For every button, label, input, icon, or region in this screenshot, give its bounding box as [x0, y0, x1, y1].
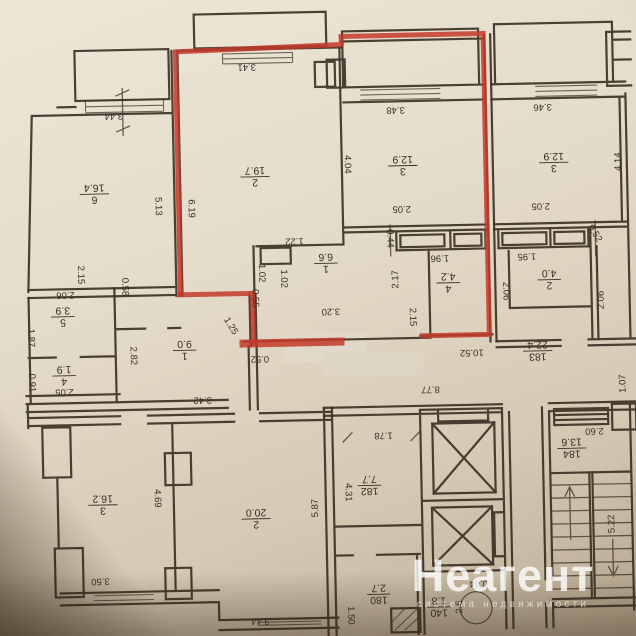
svg-text:4.2: 4.2 — [441, 270, 456, 282]
svg-text:1.9: 1.9 — [56, 363, 71, 375]
dimension-label: 1.02 — [278, 269, 289, 288]
svg-text:1.22: 1.22 — [285, 235, 304, 246]
dimension-label: 2.60 — [585, 425, 604, 436]
room-label: 1802.7 — [367, 582, 391, 606]
room-label: 16.6 — [314, 251, 338, 275]
dimension-label: 0.52 — [250, 353, 269, 364]
svg-text:2.82: 2.82 — [128, 347, 139, 366]
svg-text:1.96: 1.96 — [430, 252, 449, 263]
svg-text:3.20: 3.20 — [321, 306, 340, 317]
dimension-label: 0.55 — [249, 289, 260, 308]
svg-text:3.44: 3.44 — [251, 615, 270, 626]
room-label: 316.2 — [88, 492, 118, 517]
svg-text:4: 4 — [61, 375, 67, 387]
dimension-label: 1.95 — [517, 250, 536, 261]
svg-text:2.06: 2.06 — [56, 289, 75, 300]
svg-text:4.04: 4.04 — [342, 155, 353, 174]
svg-text:1.78: 1.78 — [374, 429, 393, 440]
svg-text:140: 140 — [430, 606, 448, 618]
svg-text:1.8: 1.8 — [431, 594, 446, 606]
svg-text:2.60: 2.60 — [585, 425, 604, 436]
dimension-label: 3.50 — [91, 575, 110, 586]
dimension-label: 0.44 — [469, 578, 488, 589]
dimension-label: 0.44 — [384, 229, 395, 248]
svg-text:0.55: 0.55 — [249, 289, 260, 308]
svg-text:3.46: 3.46 — [533, 101, 552, 112]
walls-corridor-and-core — [249, 338, 636, 636]
room-label: 18413.6 — [557, 435, 587, 460]
dimension-label: 5.22 — [606, 515, 617, 534]
dimension-label: 0.91 — [26, 374, 37, 393]
dimension-label: 3.20 — [321, 306, 340, 317]
dimension-label: 4.69 — [152, 489, 163, 508]
svg-text:1.02: 1.02 — [278, 269, 289, 288]
dimension-label: 1.02 — [256, 264, 267, 283]
svg-text:184: 184 — [563, 448, 581, 460]
dimension-label: 1.50 — [345, 606, 356, 625]
room-label: 19.0 — [173, 338, 197, 362]
room-label: 18322.4 — [523, 338, 553, 363]
dimension-label: 1.22 — [285, 235, 304, 246]
dimension-label: 3.44 — [251, 615, 270, 626]
svg-text:16.2: 16.2 — [92, 492, 113, 504]
svg-text:4.31: 4.31 — [342, 483, 353, 502]
svg-text:3.41: 3.41 — [237, 61, 256, 72]
dimension-label: 2.82 — [128, 347, 139, 366]
svg-text:4.69: 4.69 — [152, 489, 163, 508]
svg-text:5.22: 5.22 — [606, 515, 617, 534]
svg-text:2.17: 2.17 — [390, 270, 401, 289]
room-label: 24.0 — [537, 267, 561, 291]
dimension-label: 3.48 — [386, 104, 405, 115]
dimension-ticks — [115, 78, 599, 447]
svg-text:5: 5 — [60, 316, 66, 328]
svg-text:0.58: 0.58 — [119, 278, 130, 297]
svg-text:0.52: 0.52 — [250, 353, 269, 364]
svg-text:8.77: 8.77 — [421, 383, 440, 394]
dimension-label: 2.05 — [531, 200, 550, 211]
svg-text:3.42: 3.42 — [193, 394, 212, 405]
svg-text:20.0: 20.0 — [246, 506, 267, 518]
dimension-label: 2.06 — [56, 289, 75, 300]
svg-text:2: 2 — [253, 518, 259, 530]
dimension-label: 1.07 — [617, 374, 628, 393]
dimension-label: 10.52 — [460, 347, 484, 358]
svg-text:3.50: 3.50 — [91, 575, 110, 586]
svg-text:5.13: 5.13 — [152, 197, 163, 216]
svg-text:3: 3 — [551, 162, 557, 174]
room-label: 219.7 — [240, 164, 270, 189]
dimension-label: 5.87 — [310, 499, 321, 518]
svg-text:4.14: 4.14 — [613, 152, 624, 171]
svg-text:2.6: 2.6 — [454, 600, 465, 613]
dimension-label: 4.04 — [342, 155, 353, 174]
svg-text:3: 3 — [100, 504, 106, 516]
room-label: 220.0 — [241, 506, 271, 531]
svg-text:1: 1 — [182, 350, 188, 362]
svg-text:2.15: 2.15 — [407, 308, 418, 327]
dimension-label: 2.15 — [407, 308, 418, 327]
dimension-label: 1.96 — [430, 252, 449, 263]
dimension-label: 0.58 — [119, 278, 130, 297]
svg-text:183: 183 — [529, 350, 547, 362]
svg-text:2: 2 — [252, 176, 258, 188]
svg-text:182: 182 — [361, 485, 379, 497]
room-label: 41.9 — [52, 363, 76, 387]
room-label: 1827.7 — [358, 473, 382, 497]
svg-text:0.44: 0.44 — [384, 229, 395, 248]
svg-text:5.87: 5.87 — [310, 499, 321, 518]
dimension-label: 4.14 — [613, 152, 624, 171]
svg-text:180: 180 — [370, 594, 388, 606]
room-label: 312.9 — [539, 150, 569, 175]
dimension-label: 1.87 — [25, 329, 36, 348]
svg-text:6.6: 6.6 — [318, 251, 333, 263]
dimension-label: 4.31 — [342, 483, 353, 502]
svg-text:2: 2 — [546, 279, 552, 291]
svg-text:1.95: 1.95 — [517, 250, 536, 261]
svg-text:0.44: 0.44 — [469, 578, 488, 589]
floorplan-photo: 3.443.413.483.465.136.194.044.142.052.05… — [0, 0, 636, 636]
room-label: 53.9 — [51, 304, 75, 328]
svg-text:1.87: 1.87 — [25, 329, 36, 348]
dimension-label: 2.17 — [390, 270, 401, 289]
svg-text:12.9: 12.9 — [392, 153, 413, 165]
svg-text:19.7: 19.7 — [244, 164, 265, 176]
svg-text:7.7: 7.7 — [362, 473, 377, 485]
svg-text:1.02: 1.02 — [256, 264, 267, 283]
svg-text:2.7: 2.7 — [371, 582, 386, 594]
floor-plan-svg: 3.443.413.483.465.136.194.044.142.052.05… — [0, 0, 636, 636]
svg-text:13.6: 13.6 — [561, 436, 582, 448]
svg-text:4.0: 4.0 — [542, 267, 557, 279]
dimension-label: 2.15 — [75, 266, 86, 285]
svg-text:1.07: 1.07 — [617, 374, 628, 393]
dimension-label: 3.42 — [193, 394, 212, 405]
svg-text:1: 1 — [323, 263, 329, 275]
svg-text:22.4: 22.4 — [527, 338, 548, 350]
dimension-label: 1.78 — [374, 429, 393, 440]
svg-text:9.0: 9.0 — [177, 338, 192, 350]
dimension-label: 1.25 — [221, 315, 240, 337]
svg-text:1.50: 1.50 — [345, 606, 356, 625]
dimension-label: 8.77 — [421, 383, 440, 394]
dimension-label: 6.19 — [185, 199, 196, 218]
svg-text:16.4: 16.4 — [84, 181, 105, 193]
svg-text:2.15: 2.15 — [75, 266, 86, 285]
dimension-label: 3.44 — [104, 110, 123, 121]
dimension-label: 2.05 — [392, 203, 411, 214]
svg-text:2.06: 2.06 — [500, 282, 511, 301]
room-label: 1401.8 — [427, 594, 451, 618]
room-label: 44.2 — [436, 270, 460, 294]
dimension-label: 5.13 — [152, 197, 163, 216]
svg-text:3.9: 3.9 — [55, 304, 70, 316]
svg-text:6: 6 — [91, 194, 97, 206]
svg-text:1.25: 1.25 — [221, 315, 240, 337]
walls-top-left-apartment — [23, 49, 182, 299]
svg-text:3: 3 — [400, 165, 406, 177]
dimension-label: 3.41 — [237, 61, 256, 72]
dimension-label: 2.06 — [595, 291, 606, 310]
svg-text:2.06: 2.06 — [595, 291, 606, 310]
svg-text:6.19: 6.19 — [185, 199, 196, 218]
room-label: 616.4 — [79, 181, 109, 206]
room-label: 312.9 — [388, 153, 418, 178]
highlighted-apartment-outline — [175, 33, 489, 344]
svg-text:3.48: 3.48 — [386, 104, 405, 115]
svg-text:0.91: 0.91 — [26, 374, 37, 393]
svg-text:10.52: 10.52 — [460, 347, 484, 358]
svg-text:12.9: 12.9 — [543, 150, 564, 162]
svg-text:2.05: 2.05 — [531, 200, 550, 211]
dimension-label: 3.46 — [533, 101, 552, 112]
dimension-label: 2.06 — [500, 282, 511, 301]
svg-text:3.44: 3.44 — [104, 110, 123, 121]
svg-text:4: 4 — [445, 282, 451, 294]
dimension-label: 2.6 — [454, 600, 465, 613]
svg-text:2.05: 2.05 — [392, 203, 411, 214]
